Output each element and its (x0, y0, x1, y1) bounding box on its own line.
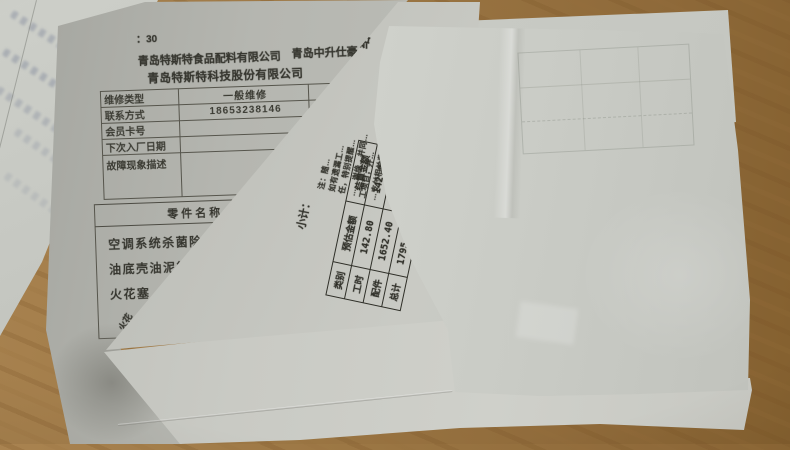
paper-sheen (560, 170, 790, 380)
field-label: 故障现象描述 (103, 153, 182, 200)
show-through-grid (517, 44, 694, 155)
company-name: 青岛特斯特科技股份有限公司 (147, 65, 303, 86)
subtotal-label: 小计： (293, 197, 314, 231)
photo-canvas: { "scene": { "desk_color": "#9c7744", "p… (0, 0, 790, 444)
grid-line (580, 50, 586, 150)
grid-line (522, 113, 692, 123)
grid-line (637, 47, 643, 147)
grid-line (520, 79, 690, 89)
print-time-fragment: ：30 (136, 30, 158, 46)
paper-reflection (516, 301, 578, 345)
dealer-name: 青岛中升仕豪 (291, 43, 358, 61)
